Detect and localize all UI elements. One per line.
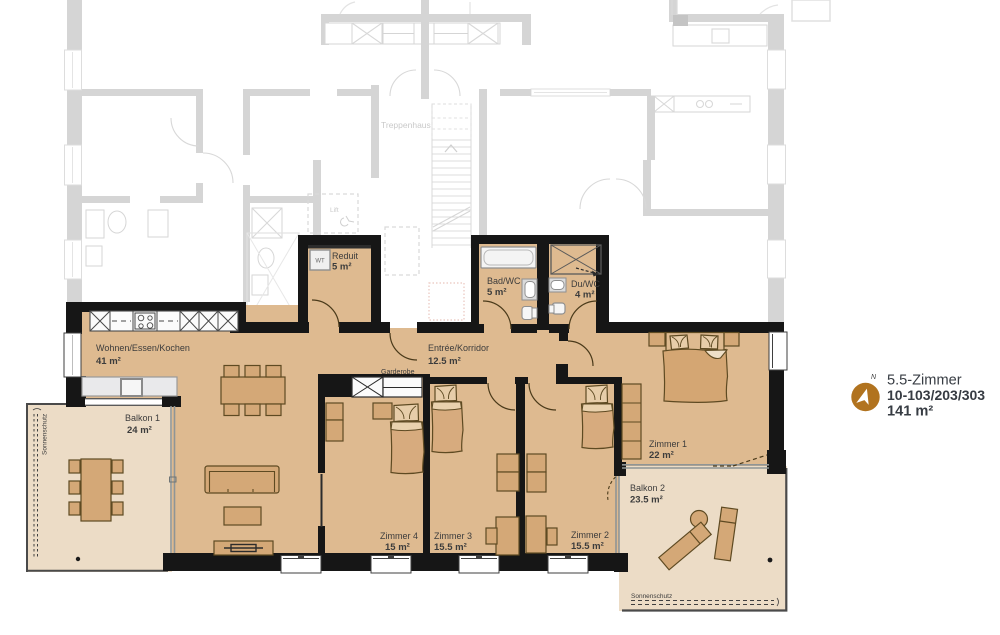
svg-text:Balkon 2: Balkon 2	[630, 483, 665, 493]
svg-text:Lift: Lift	[330, 207, 339, 214]
svg-text:23.5 m²: 23.5 m²	[630, 495, 663, 506]
svg-text:Zimmer 3: Zimmer 3	[434, 531, 472, 541]
svg-text:Reduit: Reduit	[332, 251, 359, 261]
svg-text:Du/WC: Du/WC	[571, 279, 601, 289]
svg-text:22 m²: 22 m²	[649, 450, 674, 461]
svg-text:5 m²: 5 m²	[332, 262, 352, 273]
svg-text:Zimmer 2: Zimmer 2	[571, 530, 609, 540]
svg-text:15 m²: 15 m²	[385, 542, 410, 553]
svg-text:Garderobe: Garderobe	[381, 369, 415, 376]
svg-text:Sonnenschutz: Sonnenschutz	[42, 414, 49, 455]
svg-text:24 m²: 24 m²	[127, 425, 152, 436]
svg-text:Treppenhaus: Treppenhaus	[381, 120, 431, 130]
svg-text:4 m²: 4 m²	[575, 290, 595, 301]
svg-text:141 m²: 141 m²	[887, 404, 933, 420]
svg-text:Entrée/Korridor: Entrée/Korridor	[428, 343, 489, 353]
svg-text:Balkon 1: Balkon 1	[125, 413, 160, 423]
svg-text:Zimmer 1: Zimmer 1	[649, 439, 687, 449]
svg-text:Sonnenschutz: Sonnenschutz	[631, 593, 672, 600]
svg-text:15.5 m²: 15.5 m²	[571, 541, 604, 552]
svg-text:15.5 m²: 15.5 m²	[434, 542, 467, 553]
svg-text:10-103/203/303: 10-103/203/303	[887, 387, 985, 403]
svg-text:12.5 m²: 12.5 m²	[428, 356, 461, 367]
svg-text:WT: WT	[315, 259, 325, 265]
svg-text:41 m²: 41 m²	[96, 356, 121, 367]
svg-text:Wohnen/Essen/Kochen: Wohnen/Essen/Kochen	[96, 343, 190, 353]
svg-text:5 m²: 5 m²	[487, 287, 507, 298]
svg-text:Zimmer 4: Zimmer 4	[380, 531, 418, 541]
svg-text:Bad/WC: Bad/WC	[487, 276, 521, 286]
